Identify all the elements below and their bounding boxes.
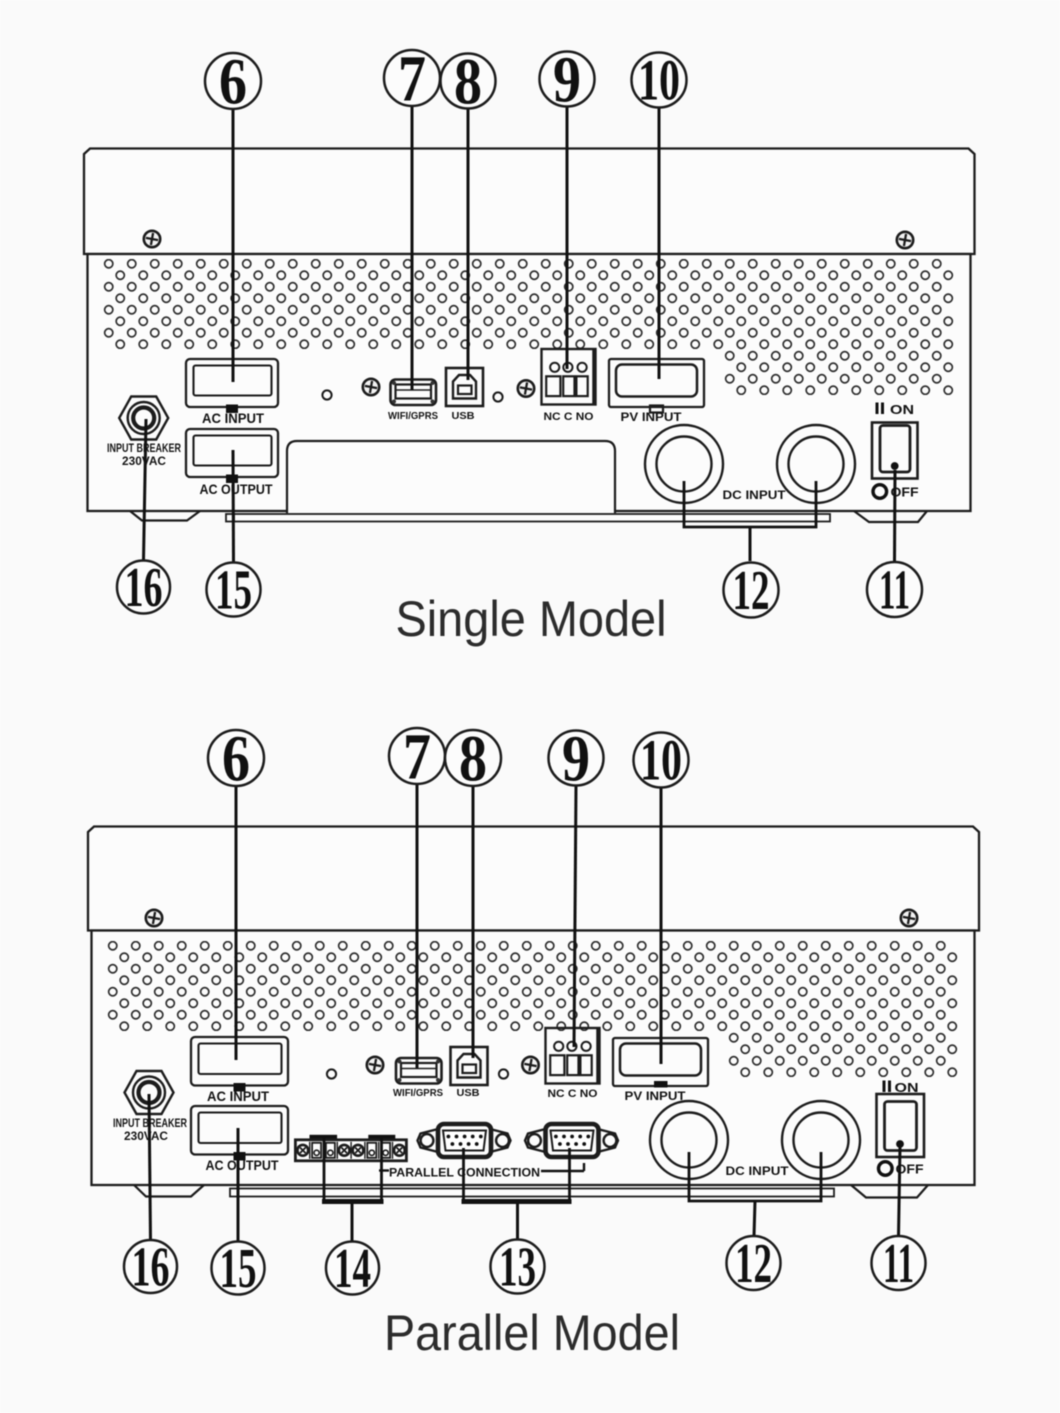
svg-text:DC INPUT: DC INPUT [723,488,787,502]
svg-text:9: 9 [562,722,590,795]
svg-text:15: 15 [215,559,252,621]
svg-text:ON: ON [895,1080,919,1095]
svg-text:10: 10 [640,728,682,793]
svg-text:AC OUTPUT: AC OUTPUT [206,1158,280,1173]
svg-text:15: 15 [220,1238,257,1300]
svg-text:16: 16 [132,1236,170,1298]
svg-text:7: 7 [403,720,431,793]
svg-text:USB: USB [452,410,475,422]
svg-text:AC INPUT: AC INPUT [202,411,265,426]
svg-text:11: 11 [883,1233,914,1295]
svg-text:230VAC: 230VAC [124,1131,168,1143]
svg-text:6: 6 [222,722,250,795]
svg-text:16: 16 [125,557,163,619]
svg-text:10: 10 [638,48,680,113]
svg-text:PV INPUT: PV INPUT [625,1089,687,1103]
svg-text:AC INPUT: AC INPUT [207,1089,270,1104]
svg-text:NC C NO: NC C NO [548,1088,598,1100]
svg-text:6: 6 [219,45,247,118]
svg-text:11: 11 [879,559,910,621]
svg-text:12: 12 [733,560,770,622]
svg-text:NC C NO: NC C NO [544,411,594,423]
svg-text:8: 8 [459,722,487,795]
svg-text:WIFI/GPRS: WIFI/GPRS [388,411,438,422]
svg-text:14: 14 [334,1238,371,1300]
svg-text:13: 13 [499,1236,536,1298]
svg-text:USB: USB [457,1087,480,1099]
svg-text:Single Model: Single Model [396,591,667,647]
svg-text:WIFI/GPRS: WIFI/GPRS [393,1088,443,1099]
svg-text:12: 12 [735,1233,772,1295]
svg-text:AC OUTPUT: AC OUTPUT [200,482,274,497]
svg-text:9: 9 [553,43,581,116]
svg-text:7: 7 [398,42,426,115]
svg-text:PV INPUT: PV INPUT [621,410,683,424]
svg-text:ON: ON [890,402,914,417]
svg-text:Parallel Model: Parallel Model [384,1305,680,1361]
svg-text:DC INPUT: DC INPUT [726,1164,790,1178]
svg-text:8: 8 [454,45,482,118]
